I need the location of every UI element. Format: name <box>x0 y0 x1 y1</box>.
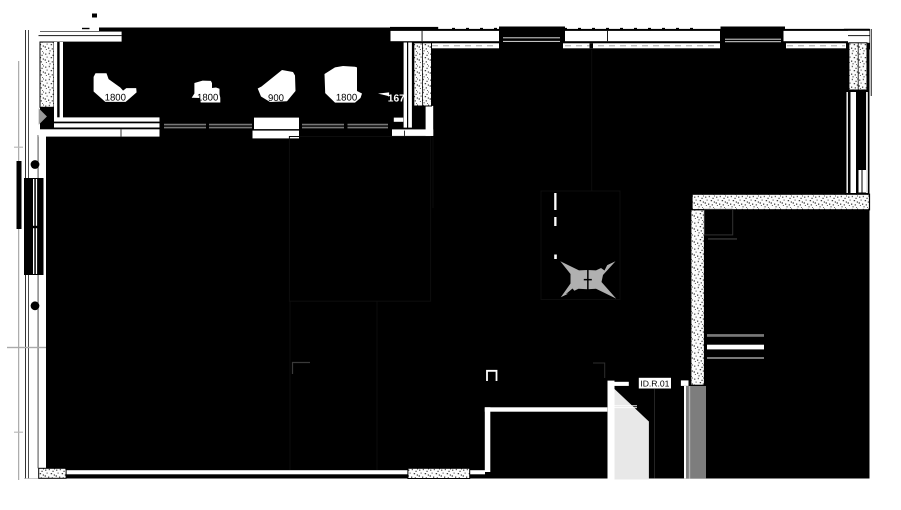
svg-text:ID.R.01: ID.R.01 <box>640 378 669 388</box>
svg-text:167: 167 <box>388 93 405 104</box>
svg-text:1800: 1800 <box>336 93 357 104</box>
svg-text:1800: 1800 <box>197 93 218 104</box>
svg-text:1800: 1800 <box>105 92 126 103</box>
svg-text:900: 900 <box>268 93 284 104</box>
